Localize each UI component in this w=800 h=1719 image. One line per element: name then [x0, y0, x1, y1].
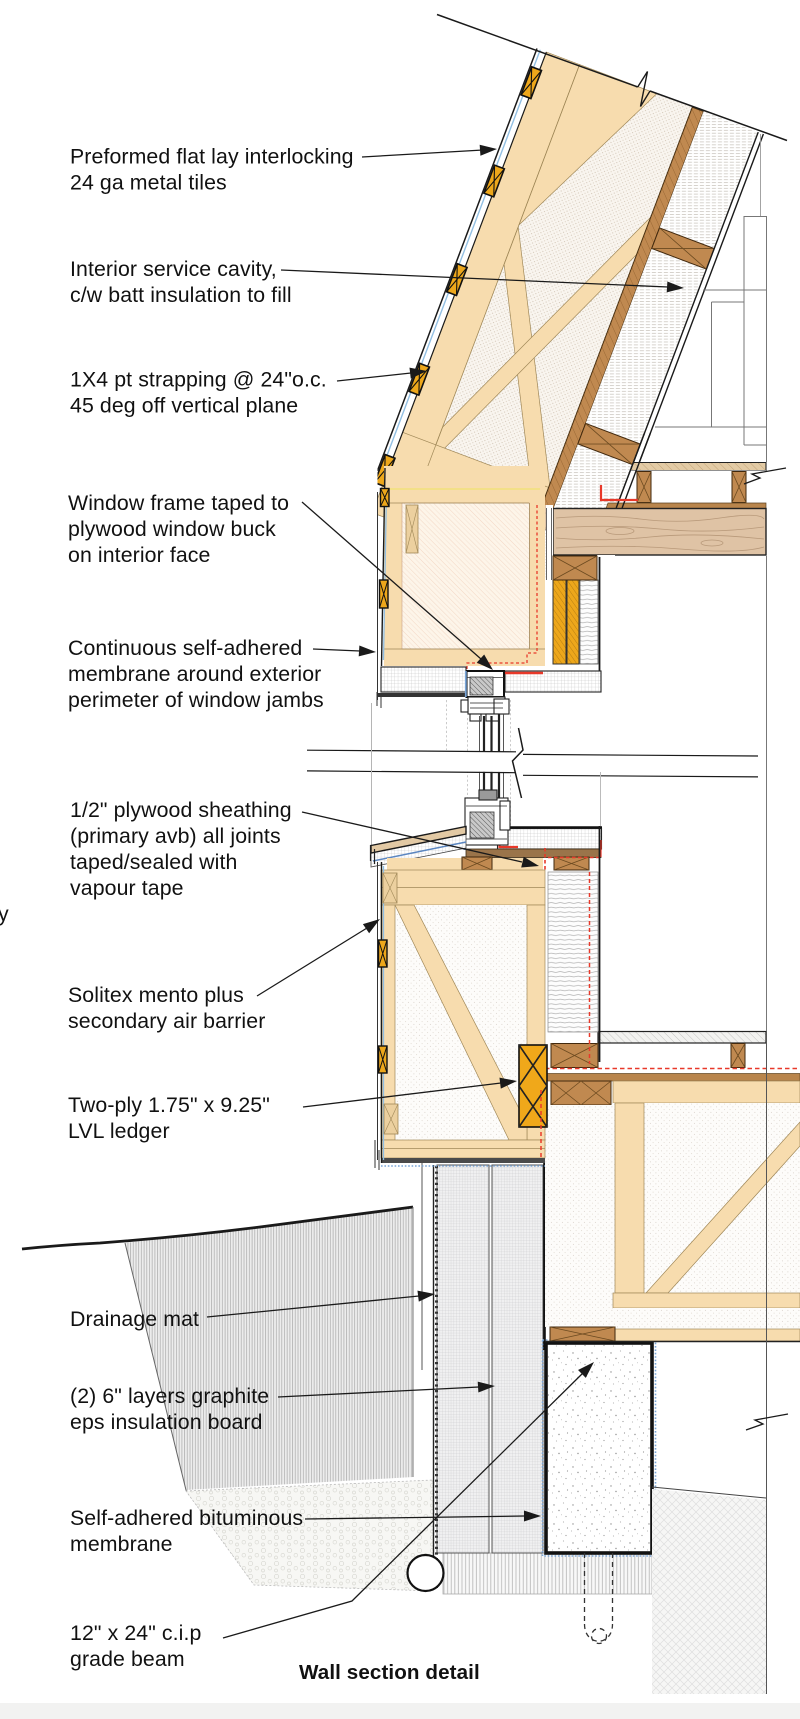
svg-text:y: y	[0, 902, 9, 926]
svg-text:vapour tape: vapour tape	[70, 876, 184, 900]
svg-text:Continuous self-adhered: Continuous self-adhered	[68, 636, 302, 660]
svg-text:membrane around exterior: membrane around exterior	[68, 662, 321, 686]
svg-text:Solitex mento plus: Solitex mento plus	[68, 983, 244, 1007]
svg-text:24 ga metal tiles: 24 ga metal tiles	[70, 171, 227, 195]
svg-text:45 deg off vertical plane: 45 deg off vertical plane	[70, 394, 298, 418]
svg-text:membrane: membrane	[70, 1532, 173, 1556]
svg-text:1/2" plywood sheathing: 1/2" plywood sheathing	[70, 798, 292, 822]
svg-text:(2) 6" layers graphite: (2) 6" layers graphite	[70, 1384, 269, 1408]
svg-text:taped/sealed with: taped/sealed with	[70, 850, 237, 874]
svg-text:1X4 pt strapping @ 24"o.c.: 1X4 pt strapping @ 24"o.c.	[70, 368, 327, 392]
svg-text:(primary avb) all joints: (primary avb) all joints	[70, 824, 281, 848]
svg-text:Two-ply 1.75" x 9.25": Two-ply 1.75" x 9.25"	[68, 1093, 270, 1117]
svg-text:LVL ledger: LVL ledger	[68, 1119, 170, 1143]
svg-text:c/w batt insulation to fill: c/w batt insulation to fill	[70, 283, 292, 307]
svg-text:Window frame taped to: Window frame taped to	[68, 491, 289, 515]
svg-text:eps insulation board: eps insulation board	[70, 1410, 263, 1434]
svg-text:Preformed flat lay interlockin: Preformed flat lay interlocking	[70, 145, 354, 169]
svg-text:perimeter of window jambs: perimeter of window jambs	[68, 688, 324, 712]
svg-text:on interior face: on interior face	[68, 543, 210, 567]
svg-text:secondary air barrier: secondary air barrier	[68, 1009, 265, 1033]
svg-text:12" x 24" c.i.p: 12" x 24" c.i.p	[70, 1621, 201, 1645]
svg-text:grade beam: grade beam	[70, 1647, 185, 1671]
svg-text:Interior service cavity,: Interior service cavity,	[70, 257, 277, 281]
svg-text:Self-adhered bituminous: Self-adhered bituminous	[70, 1506, 303, 1530]
svg-text:plywood window buck: plywood window buck	[68, 517, 276, 541]
svg-text:Drainage mat: Drainage mat	[70, 1307, 199, 1331]
svg-text:Wall section detail: Wall section detail	[299, 1661, 480, 1684]
